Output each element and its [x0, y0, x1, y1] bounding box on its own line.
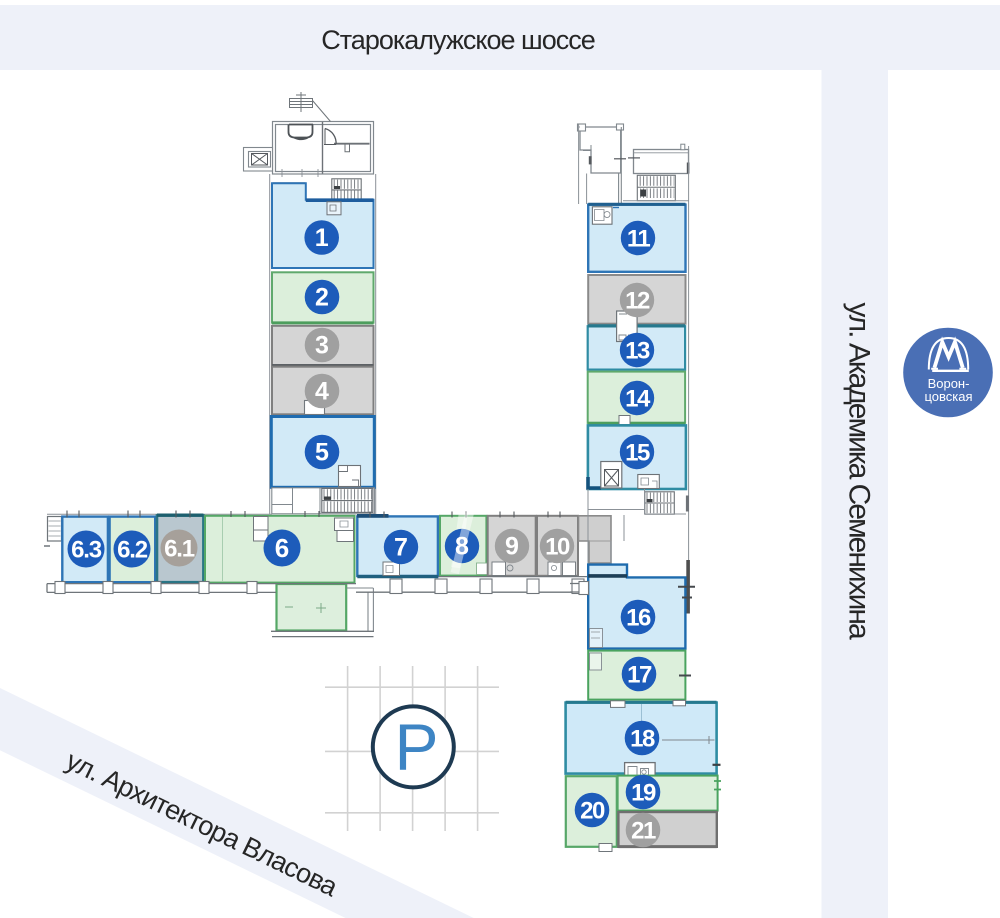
svg-text:2: 2: [315, 284, 329, 312]
svg-text:6: 6: [275, 533, 289, 563]
svg-text:10: 10: [545, 533, 570, 560]
svg-text:16: 16: [626, 604, 651, 631]
svg-text:6.2: 6.2: [117, 537, 148, 564]
svg-text:18: 18: [630, 725, 655, 752]
svg-text:3: 3: [315, 332, 329, 360]
svg-text:17: 17: [627, 661, 652, 688]
svg-text:Старокалужское шоссе: Старокалужское шоссе: [321, 25, 595, 55]
svg-text:9: 9: [505, 533, 519, 561]
svg-text:5: 5: [315, 439, 329, 467]
svg-text:1: 1: [315, 224, 329, 252]
svg-text:14: 14: [625, 385, 651, 412]
svg-text:7: 7: [394, 534, 408, 562]
svg-text:11: 11: [627, 225, 651, 252]
svg-text:21: 21: [631, 817, 656, 844]
svg-text:ул. Академика Семенихина: ул. Академика Семенихина: [843, 302, 876, 640]
svg-text:6.3: 6.3: [71, 537, 102, 564]
svg-text:цовская: цовская: [924, 389, 972, 404]
svg-text:19: 19: [631, 779, 656, 806]
svg-text:12: 12: [625, 287, 650, 314]
svg-text:4: 4: [315, 378, 329, 406]
svg-text:13: 13: [625, 337, 650, 364]
svg-text:P: P: [394, 710, 438, 784]
svg-text:20: 20: [580, 797, 605, 824]
svg-text:6.1: 6.1: [164, 536, 195, 563]
svg-text:15: 15: [625, 439, 650, 466]
